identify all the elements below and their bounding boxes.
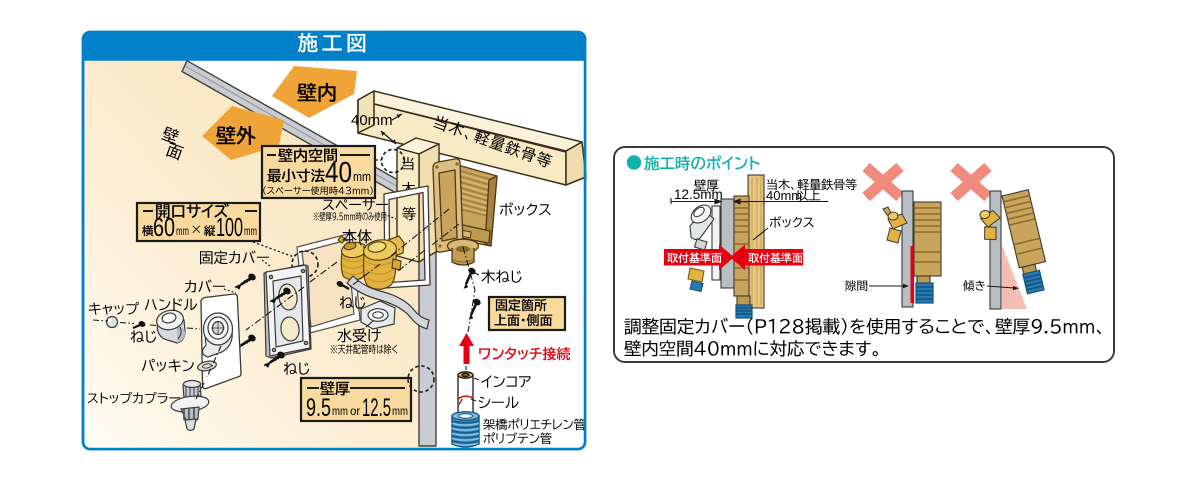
svg-text:mm: mm: [392, 406, 408, 418]
svg-text:mm: mm: [244, 226, 257, 238]
svg-text:40mm: 40mm: [351, 112, 393, 129]
svg-text:100: 100: [216, 212, 243, 242]
svg-text:or: or: [350, 406, 360, 418]
svg-text:mm: mm: [353, 170, 371, 184]
svg-text:mm: mm: [332, 406, 348, 418]
svg-text:40mm: 40mm: [766, 188, 802, 203]
svg-text:9.5: 9.5: [306, 394, 331, 422]
svg-text:40: 40: [325, 157, 352, 189]
svg-text:12.5: 12.5: [362, 394, 391, 422]
svg-text:mm: mm: [176, 226, 189, 238]
svg-text:60: 60: [153, 212, 175, 242]
